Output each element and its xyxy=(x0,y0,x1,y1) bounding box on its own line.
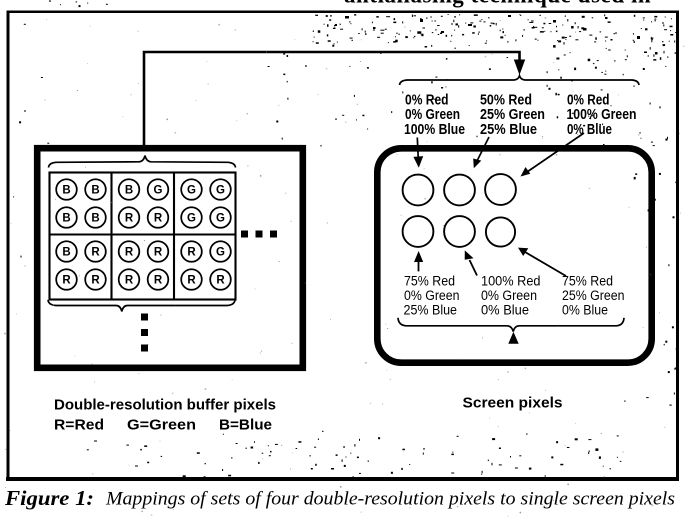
svg-text:R: R xyxy=(187,247,196,259)
svg-text:R: R xyxy=(91,247,100,259)
svg-text:0% Blue: 0% Blue xyxy=(481,302,529,318)
svg-text:G: G xyxy=(187,185,196,197)
svg-text:B: B xyxy=(62,213,70,225)
svg-text:25% Blue: 25% Blue xyxy=(404,302,458,318)
svg-text:G: G xyxy=(216,185,225,197)
svg-text:100% Green: 100% Green xyxy=(567,107,637,123)
svg-text:25% Green: 25% Green xyxy=(480,107,545,123)
svg-text:Figure 1:: Figure 1: xyxy=(4,487,94,510)
svg-text:R: R xyxy=(154,213,163,225)
svg-text:B: B xyxy=(91,185,99,197)
svg-text:R: R xyxy=(125,213,134,225)
svg-text:R: R xyxy=(125,275,134,287)
svg-text:B: B xyxy=(91,213,99,225)
svg-text:G: G xyxy=(187,213,196,225)
svg-text:B: B xyxy=(62,247,70,259)
svg-text:R: R xyxy=(91,275,100,287)
svg-text:antialiasing technique used in: antialiasing technique used in xyxy=(344,0,651,7)
svg-text:G: G xyxy=(216,213,225,225)
svg-text:0% Blue: 0% Blue xyxy=(562,302,608,318)
svg-text:R: R xyxy=(187,275,196,287)
svg-text:100% Blue: 100% Blue xyxy=(404,122,465,138)
svg-text:G=Green: G=Green xyxy=(127,418,196,434)
svg-text:Mappings of sets of four doubl: Mappings of sets of four double-resoluti… xyxy=(105,489,675,510)
svg-text:R: R xyxy=(154,275,163,287)
svg-text:R: R xyxy=(154,247,163,259)
svg-text:B: B xyxy=(125,185,133,197)
svg-text:B=Blue: B=Blue xyxy=(219,418,272,434)
svg-text:R=Red: R=Red xyxy=(54,418,104,434)
svg-text:G: G xyxy=(154,185,163,197)
svg-text:R: R xyxy=(62,275,71,287)
svg-text:0% Green: 0% Green xyxy=(405,107,460,123)
svg-text:25% Blue: 25% Blue xyxy=(480,122,537,138)
svg-text:B: B xyxy=(62,185,70,197)
svg-text:Double-resolution buffer pixel: Double-resolution buffer pixels xyxy=(54,398,276,414)
svg-text:R: R xyxy=(125,247,134,259)
svg-text:0% Blue: 0% Blue xyxy=(567,122,612,138)
svg-text:Screen pixels: Screen pixels xyxy=(463,396,563,412)
svg-text:R: R xyxy=(216,275,225,287)
svg-text:G: G xyxy=(216,247,225,259)
